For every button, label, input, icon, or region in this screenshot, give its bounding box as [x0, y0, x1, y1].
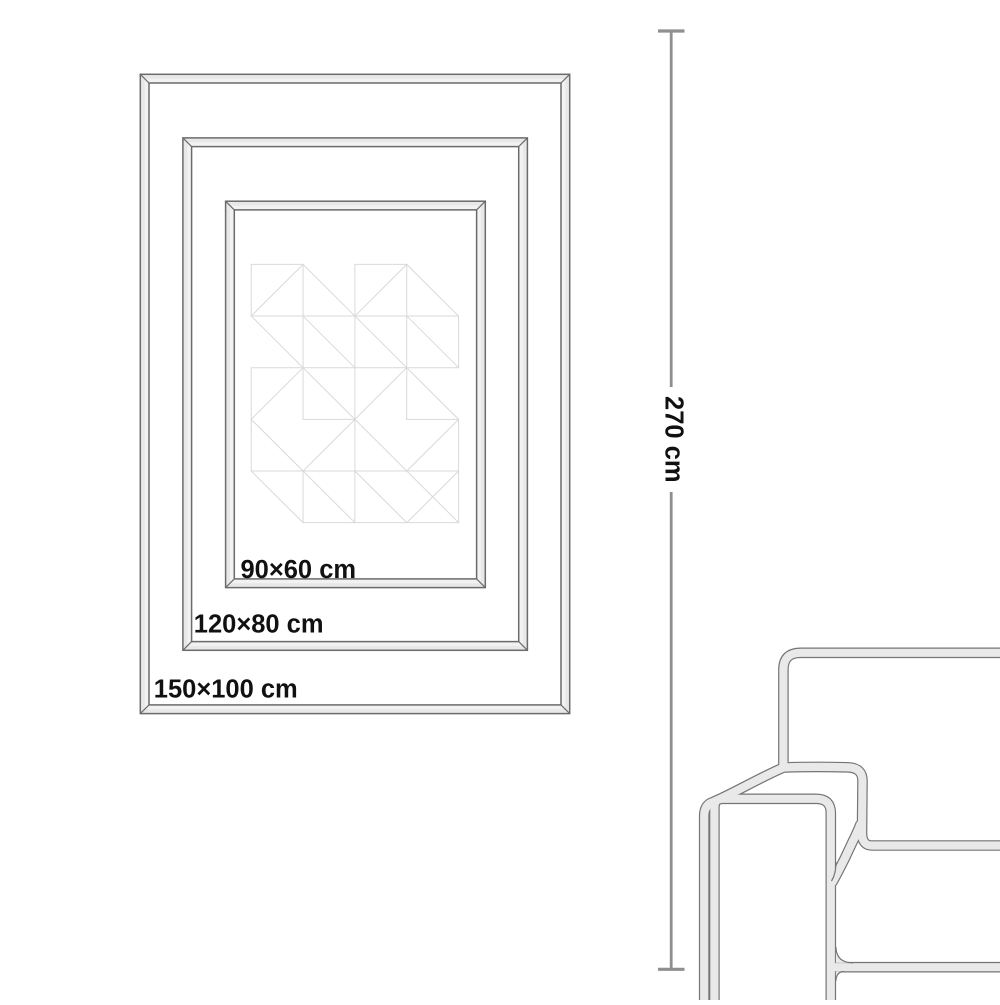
- svg-text:120×80 cm: 120×80 cm: [194, 610, 324, 638]
- svg-text:90×60 cm: 90×60 cm: [241, 556, 357, 584]
- svg-text:270 cm: 270 cm: [660, 396, 688, 483]
- svg-text:150×100 cm: 150×100 cm: [154, 676, 298, 704]
